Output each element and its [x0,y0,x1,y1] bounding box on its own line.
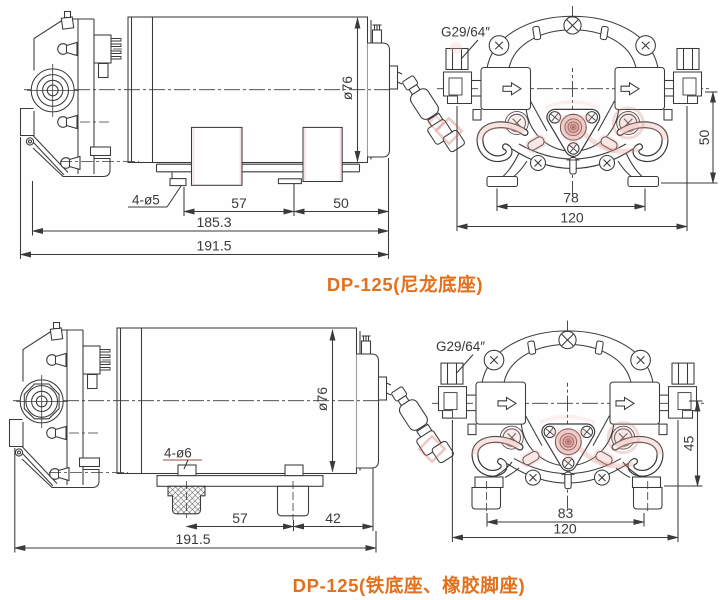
svg-text:DP-125(尼龙底座): DP-125(尼龙底座) [327,274,483,295]
svg-text:78: 78 [563,190,579,206]
svg-text:ø76: ø76 [314,387,330,411]
svg-text:50: 50 [333,195,349,211]
svg-text:185.3: 185.3 [196,214,231,230]
svg-text:191.5: 191.5 [175,531,210,547]
svg-text:83: 83 [558,505,574,521]
svg-text:57: 57 [231,195,247,211]
svg-text:50: 50 [696,130,712,146]
svg-text:42: 42 [325,510,341,526]
svg-text:120: 120 [560,210,584,226]
svg-text:ø76: ø76 [339,76,355,100]
svg-text:DP-125(铁底座、橡胶脚座): DP-125(铁底座、橡胶脚座) [293,575,526,596]
svg-text:191.5: 191.5 [196,238,231,254]
svg-text:4-ø5: 4-ø5 [132,193,160,208]
svg-text:120: 120 [553,521,577,537]
svg-text:57: 57 [232,510,248,526]
svg-text:45: 45 [681,436,697,452]
svg-text:4-ø6: 4-ø6 [164,446,192,461]
